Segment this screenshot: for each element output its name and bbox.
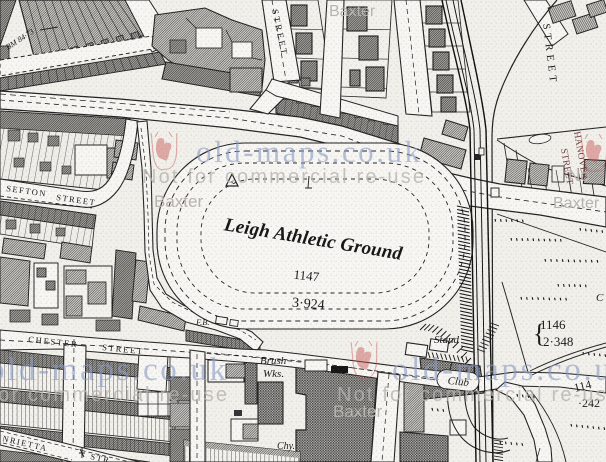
- svg-text:Not for commercial re-use: Not for commercial re-use: [142, 166, 424, 188]
- svg-text:No: No: [568, 166, 590, 185]
- svg-text:old-maps.co.uk: old-maps.co.uk: [0, 352, 227, 388]
- svg-text:Not for commercial re-use: Not for commercial re-use: [0, 384, 227, 406]
- svg-text:Baxter: Baxter: [333, 402, 382, 421]
- svg-text:Baxter: Baxter: [154, 192, 203, 211]
- svg-text:Baxter: Baxter: [329, 3, 376, 20]
- svg-text:old-maps.co.uk: old-maps.co.uk: [196, 134, 421, 169]
- svg-text:Baxter: Baxter: [553, 195, 600, 212]
